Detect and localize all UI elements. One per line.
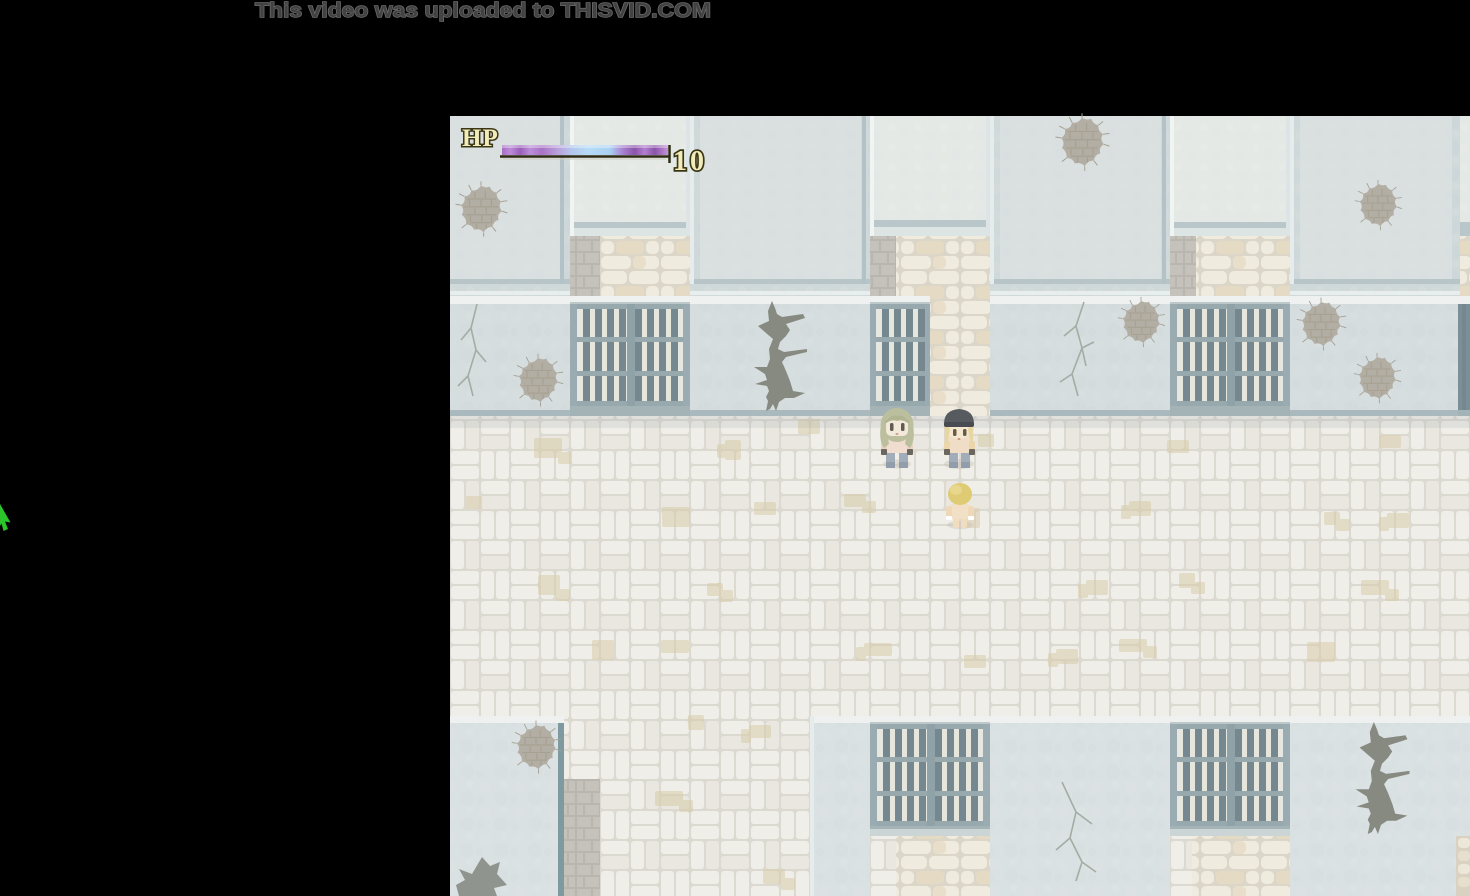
svg-text:HP: HP (462, 125, 499, 152)
svg-text:This video was uploaded to THI: This video was uploaded to THISVID.COM (255, 0, 711, 22)
svg-text:10: 10 (673, 146, 707, 177)
